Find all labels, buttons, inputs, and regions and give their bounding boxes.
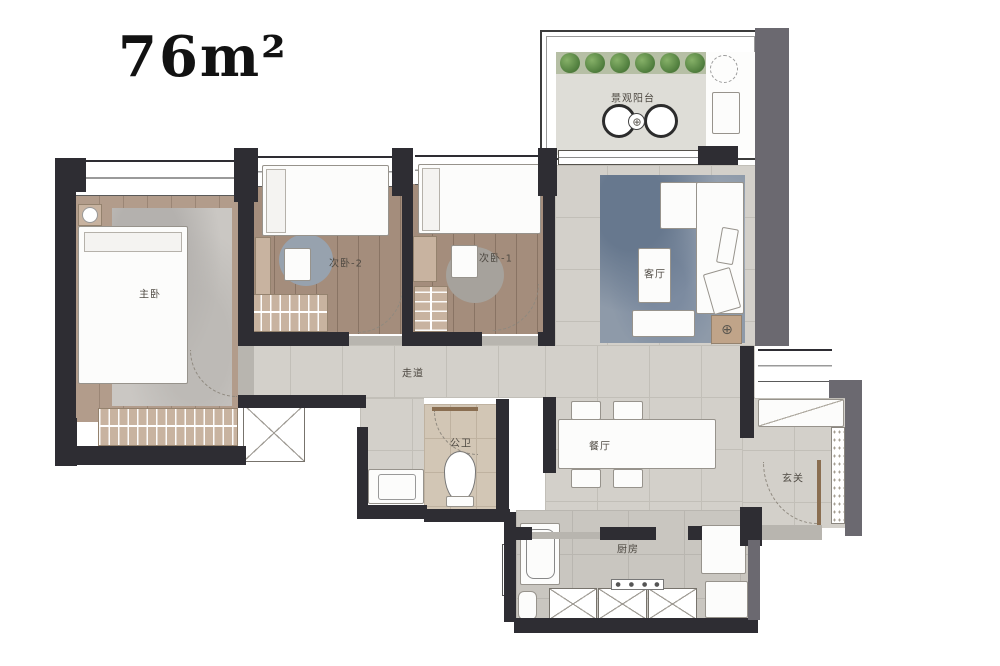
bedroom1-bed-pillow	[422, 168, 440, 231]
dining-table	[558, 419, 716, 469]
bedroom2-door-threshold	[349, 336, 402, 345]
bedroom1-wardrobe	[414, 286, 448, 332]
wall	[238, 395, 366, 408]
plant-icon	[585, 53, 605, 73]
wall	[357, 427, 368, 511]
plant-icon	[660, 53, 680, 73]
bedroom1-side-cabinet	[413, 236, 437, 282]
plan-title: 76m²	[118, 24, 288, 90]
bedroom2-side-cabinet	[255, 237, 271, 295]
target-symbol-icon: ⊕	[721, 322, 733, 338]
balcony-chair	[644, 104, 678, 138]
master-bed-pillows	[84, 232, 182, 252]
dining-chair	[613, 401, 643, 420]
wall	[55, 158, 86, 192]
plant-icon	[635, 53, 655, 73]
foyer-kitchen-threshold	[762, 525, 822, 540]
wall	[504, 512, 516, 622]
wall	[70, 446, 246, 465]
tv-bench	[632, 310, 695, 337]
wall	[496, 399, 509, 511]
dining-chair	[571, 469, 601, 488]
kitchen-appliance	[705, 581, 748, 618]
wall	[845, 396, 862, 536]
kitchen-fixture	[518, 591, 537, 620]
balcony-appliance	[712, 92, 740, 134]
wall	[402, 194, 413, 334]
target-symbol-icon: ⊕	[632, 116, 641, 129]
bedroom1-bed	[418, 164, 541, 234]
shoe-cabinet	[831, 427, 845, 524]
kitchen-door-threshold	[532, 532, 600, 539]
wall	[55, 158, 76, 434]
label-living-room: 客厅	[644, 266, 666, 281]
wall	[688, 526, 702, 540]
label-kitchen: 厨房	[617, 541, 639, 556]
plant-icon	[610, 53, 630, 73]
nightstand-lamp-icon	[82, 207, 98, 223]
wall	[538, 148, 557, 196]
dining-chair	[571, 401, 601, 420]
corridor-floor	[238, 345, 545, 398]
kitchen-cabinet	[648, 588, 697, 620]
wall	[748, 540, 760, 620]
wall	[740, 346, 754, 438]
kitchen-cabinet	[549, 588, 597, 620]
label-corridor: 走道	[402, 365, 424, 380]
floor-plan: 76m² ⊕	[0, 0, 1000, 666]
bedroom2-desk	[284, 248, 311, 281]
vanity-sink	[378, 474, 416, 500]
wall	[514, 527, 532, 540]
stove-icon	[611, 579, 664, 590]
bedroom1-door-threshold	[482, 336, 538, 345]
label-balcony: 景观阳台	[611, 90, 655, 105]
label-foyer: 玄关	[782, 470, 804, 485]
foyer-window	[758, 349, 832, 382]
wall	[238, 200, 254, 346]
bedroom2-bed	[262, 165, 389, 236]
wall	[543, 397, 556, 473]
plant-icon	[685, 53, 705, 73]
toilet-tank	[446, 496, 474, 507]
bedroom2-wardrobe	[250, 294, 328, 332]
wall	[392, 148, 413, 196]
bedroom1-desk	[451, 245, 478, 278]
wall	[402, 332, 482, 346]
plant-icon	[560, 53, 580, 73]
wall	[600, 527, 656, 540]
ac-platform	[243, 404, 305, 462]
wall	[514, 618, 758, 633]
label-bedroom2: 次卧-2	[329, 255, 363, 270]
wall	[543, 194, 555, 334]
vanity-nook-floor	[360, 398, 424, 472]
kitchen-cabinet	[598, 588, 647, 620]
bathroom-vanity	[368, 469, 424, 504]
master-nightstand	[78, 204, 102, 226]
master-wardrobe	[98, 408, 238, 446]
label-dining-room: 餐厅	[589, 438, 611, 453]
dining-chair	[613, 469, 643, 488]
balcony-planter-circle	[710, 55, 738, 83]
master-bedroom-window	[75, 160, 238, 196]
wall	[538, 332, 555, 346]
master-bed	[78, 226, 188, 384]
wall	[251, 332, 349, 346]
wall	[698, 146, 738, 165]
master-door-threshold	[238, 346, 254, 395]
wall	[234, 148, 258, 202]
foyer-closet	[758, 399, 844, 427]
balcony-sliding-door	[558, 150, 699, 165]
entry-door-leaf	[817, 460, 821, 526]
label-bedroom1: 次卧-1	[479, 250, 513, 265]
label-master-bedroom: 主卧	[139, 286, 161, 301]
bedroom2-bed-pillow	[266, 169, 286, 233]
wall	[755, 28, 789, 346]
wall	[357, 505, 427, 519]
label-bathroom: 公卫	[450, 435, 472, 450]
